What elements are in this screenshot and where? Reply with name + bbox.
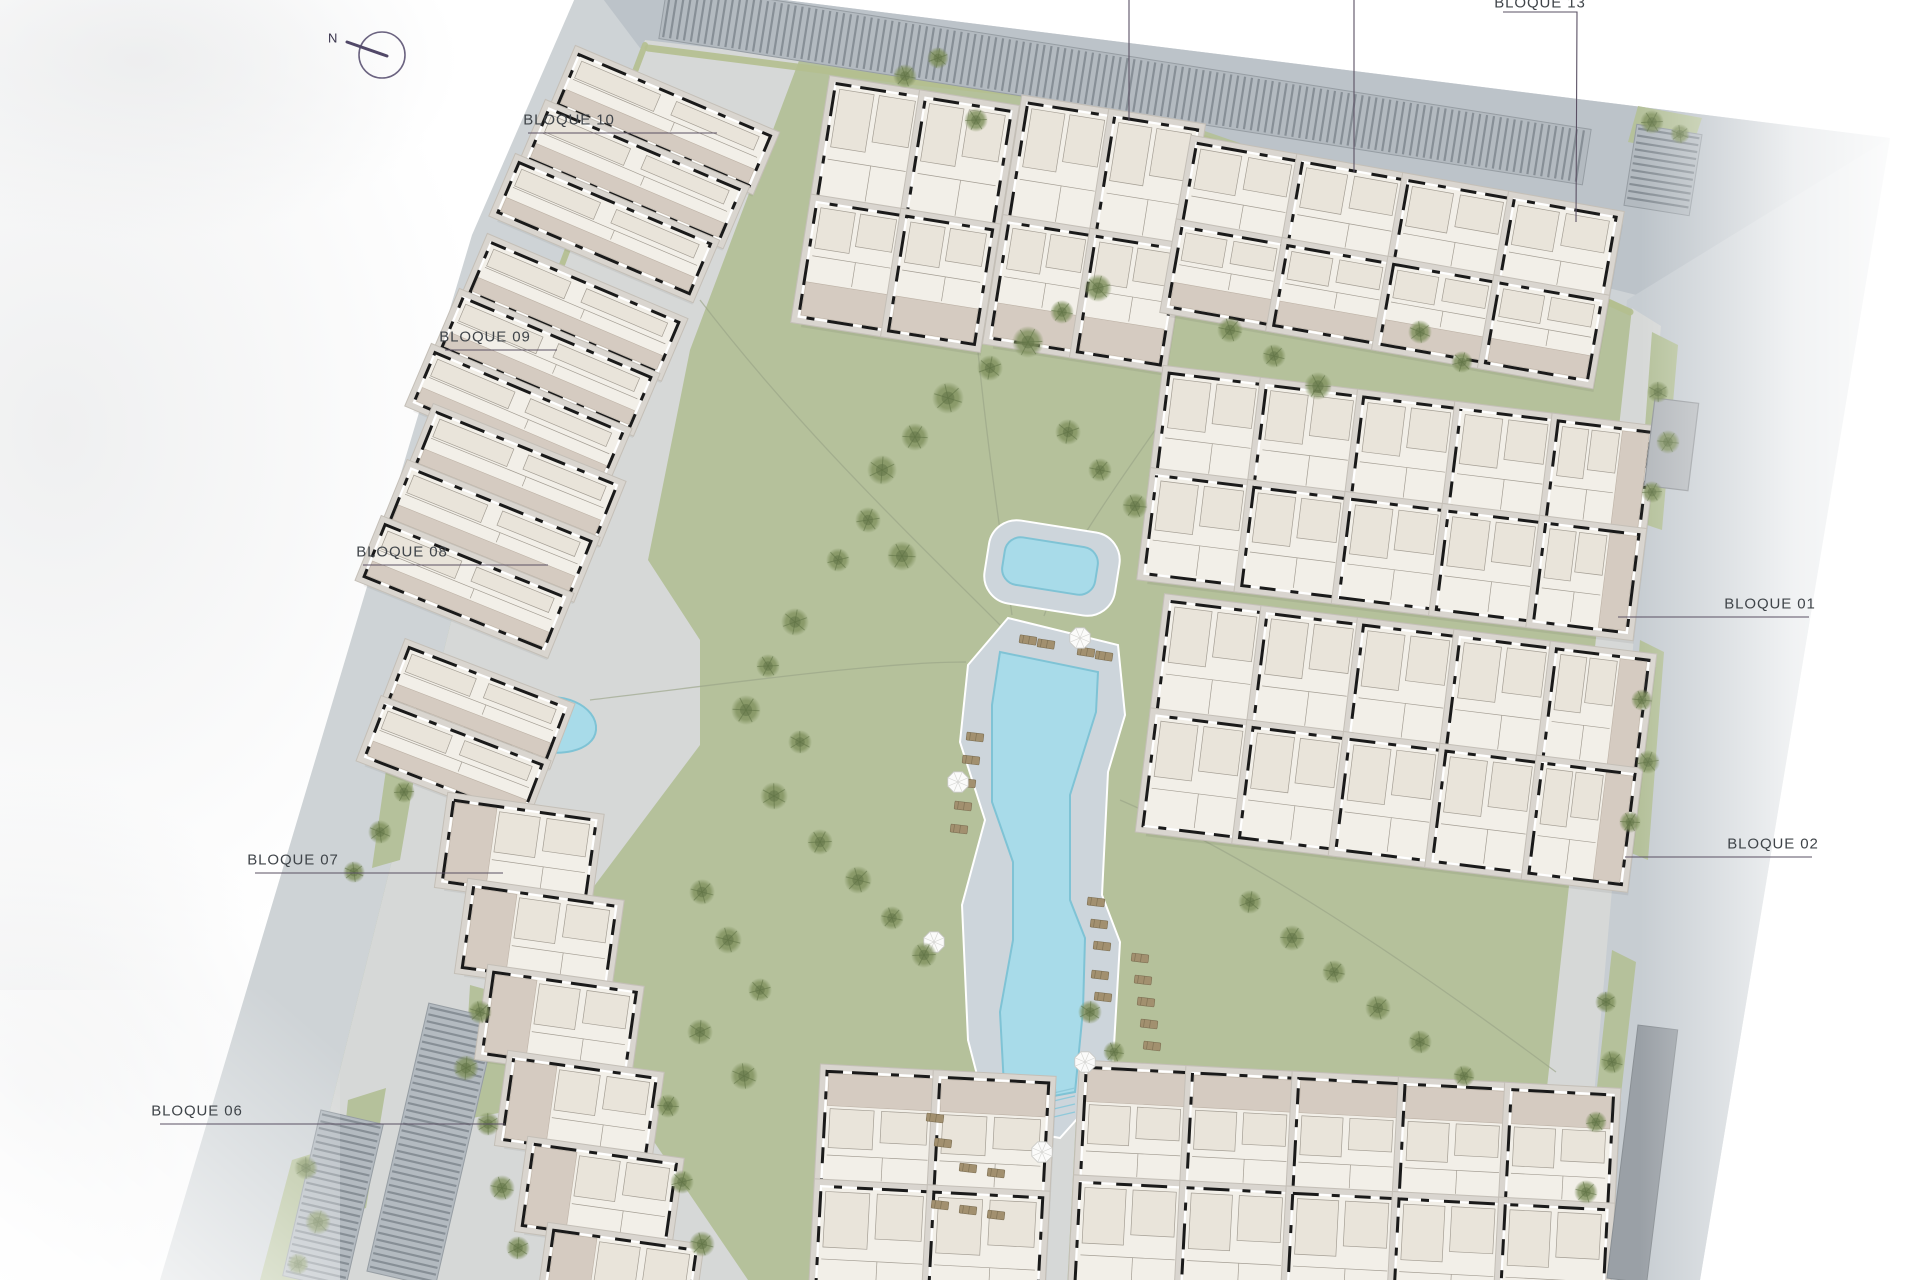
tree-icon	[807, 829, 833, 855]
sun-lounger-icon	[1140, 1019, 1158, 1029]
tree-icon	[656, 1094, 680, 1118]
tree-icon	[901, 423, 929, 451]
sun-lounger-icon	[987, 1210, 1005, 1220]
sun-lounger-icon	[959, 1205, 977, 1215]
sun-lounger-icon	[1093, 941, 1111, 951]
tree-icon	[714, 926, 742, 954]
tree-icon	[1238, 890, 1262, 914]
tree-icon	[1012, 326, 1044, 358]
umbrella-icon	[948, 772, 968, 792]
tree-icon	[1088, 458, 1112, 482]
tree-icon	[932, 382, 964, 414]
sun-lounger-icon	[1094, 992, 1112, 1002]
sun-lounger-icon	[1091, 970, 1109, 980]
tree-icon	[368, 820, 392, 844]
tree-icon	[788, 730, 812, 754]
tree-icon	[1574, 1180, 1598, 1204]
sun-lounger-icon	[950, 824, 968, 834]
sun-lounger-icon	[1143, 1041, 1161, 1051]
sun-lounger-icon	[934, 1138, 952, 1148]
tree-icon	[687, 1019, 713, 1045]
tree-icon	[1451, 351, 1473, 373]
sun-lounger-icon	[1087, 897, 1105, 907]
tree-icon	[826, 548, 850, 572]
sun-lounger-icon	[962, 755, 980, 765]
tree-icon	[781, 608, 809, 636]
umbrella-icon	[1070, 628, 1090, 648]
tree-icon	[887, 541, 917, 571]
tree-icon	[977, 355, 1003, 381]
tree-icon	[760, 782, 788, 810]
sun-lounger-icon	[1131, 953, 1149, 963]
tree-icon	[468, 1000, 492, 1024]
building-cluster-bottom-cluster-1[interactable]	[808, 1064, 1057, 1280]
tree-icon	[670, 1170, 694, 1194]
tree-icon	[689, 879, 715, 905]
tree-icon	[506, 1236, 530, 1260]
sun-lounger-icon	[1134, 975, 1152, 985]
tree-icon	[964, 108, 988, 132]
tree-icon	[453, 1055, 479, 1081]
tree-icon	[393, 781, 415, 803]
block-label-bloque-08[interactable]: BLOQUE 08	[356, 544, 447, 561]
tree-icon	[1585, 1111, 1607, 1133]
tree-icon	[867, 455, 897, 485]
umbrella-icon	[1032, 1142, 1052, 1162]
sun-lounger-icon	[987, 1168, 1005, 1178]
sun-lounger-icon	[959, 1163, 977, 1173]
sun-lounger-icon	[1137, 997, 1155, 1007]
tree-icon	[756, 654, 780, 678]
tree-icon	[1600, 1050, 1624, 1074]
tree-icon	[1595, 991, 1617, 1013]
block-label-bloque-02[interactable]: BLOQUE 02	[1727, 836, 1818, 853]
tree-icon	[1084, 274, 1112, 302]
tree-icon	[489, 1175, 515, 1201]
block-label-bloque-01[interactable]: BLOQUE 01	[1724, 596, 1815, 613]
tree-icon	[911, 942, 937, 968]
tree-icon	[1279, 925, 1305, 951]
tree-icon	[731, 695, 761, 725]
tree-icon	[1365, 995, 1391, 1021]
tree-icon	[1103, 1041, 1125, 1063]
tree-icon	[730, 1062, 758, 1090]
tree-icon	[927, 47, 949, 69]
tree-icon	[1619, 811, 1641, 833]
tree-icon	[893, 64, 917, 88]
umbrella-icon	[1075, 1052, 1095, 1072]
sun-lounger-icon	[931, 1200, 949, 1210]
tree-icon	[748, 978, 772, 1002]
tree-icon	[1055, 419, 1081, 445]
tree-icon	[1078, 1000, 1102, 1024]
block-label-bloque-13[interactable]: BLOQUE 13	[1494, 0, 1585, 12]
masterplan-canvas: N BLOQUE 10BLOQUE 09BLOQUE 08BLOQUE 07BL…	[0, 0, 1920, 1280]
building-cluster-bottom-cluster-2[interactable]	[1067, 1060, 1622, 1280]
tree-icon	[1122, 493, 1148, 519]
site-plan-svg	[0, 0, 1920, 1280]
sun-lounger-icon	[954, 801, 972, 811]
sun-lounger-icon	[966, 732, 984, 742]
tree-icon	[855, 507, 881, 533]
tree-icon	[844, 866, 872, 894]
tree-icon	[1408, 320, 1432, 344]
tree-icon	[1217, 317, 1243, 343]
tree-icon	[1262, 344, 1286, 368]
block-label-bloque-07[interactable]: BLOQUE 07	[247, 852, 338, 869]
tree-icon	[880, 906, 904, 930]
tree-icon	[1304, 372, 1332, 400]
tree-icon	[1050, 300, 1074, 324]
block-label-bloque-10[interactable]: BLOQUE 10	[523, 112, 614, 129]
tree-icon	[343, 861, 365, 883]
sun-lounger-icon	[1090, 919, 1108, 929]
sun-lounger-icon	[926, 1113, 944, 1123]
block-label-bloque-06[interactable]: BLOQUE 06	[151, 1103, 242, 1120]
tree-icon	[689, 1231, 715, 1257]
block-label-bloque-09[interactable]: BLOQUE 09	[439, 329, 530, 346]
tree-icon	[1322, 960, 1346, 984]
tree-icon	[1408, 1030, 1432, 1054]
tree-icon	[1453, 1065, 1475, 1087]
